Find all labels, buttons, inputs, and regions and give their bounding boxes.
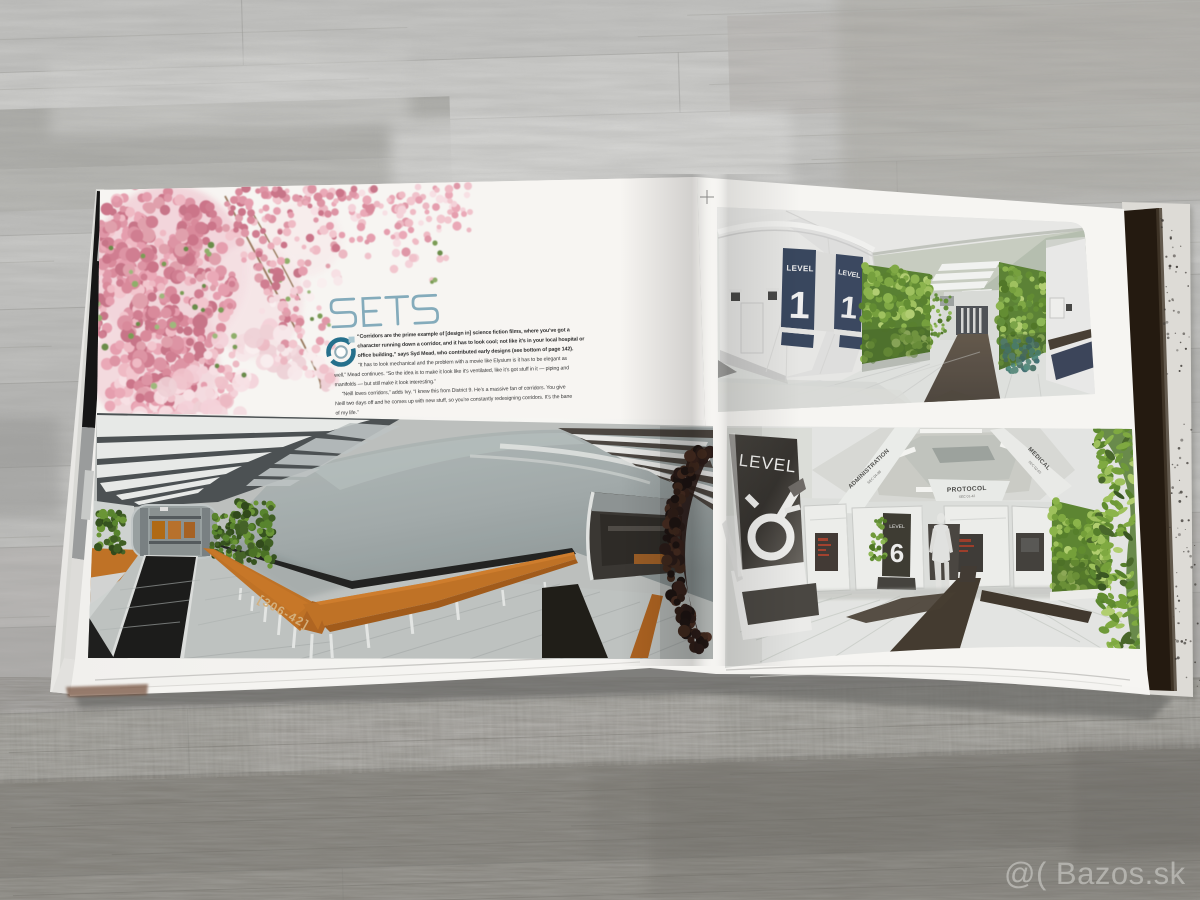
svg-text:of my life.”: of my life.” [335, 410, 359, 417]
svg-text:@( Bazos.sk: @( Bazos.sk [1004, 856, 1186, 891]
